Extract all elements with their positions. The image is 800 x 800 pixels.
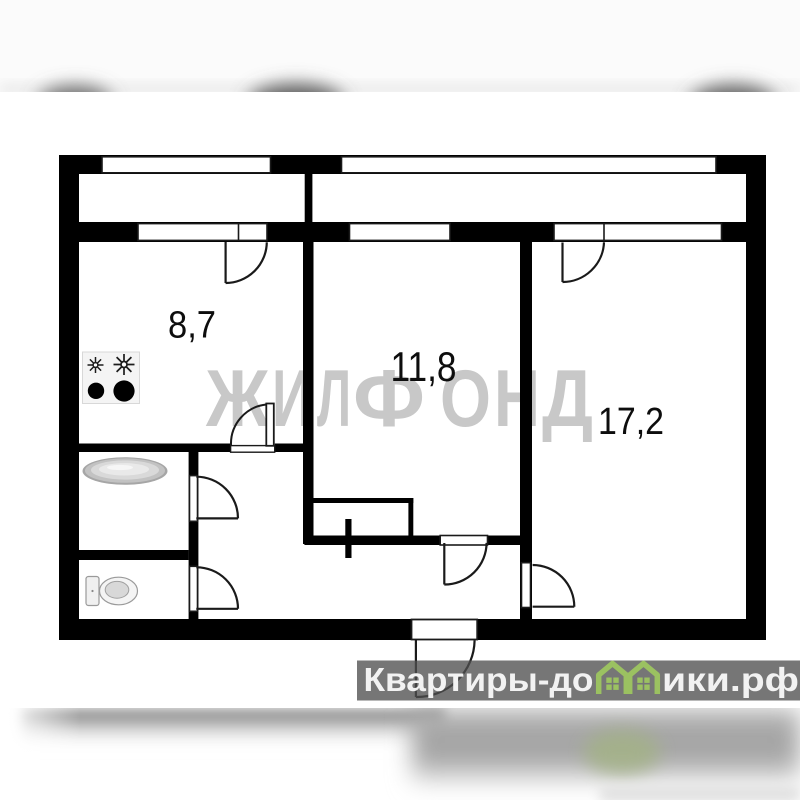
svg-text:17,2: 17,2 <box>598 401 664 443</box>
svg-text:Квартиры-до: Квартиры-до <box>364 662 594 699</box>
svg-text:ики.рф: ики.рф <box>662 662 799 699</box>
svg-text:Д: Д <box>542 354 593 444</box>
svg-text:11,8: 11,8 <box>391 343 457 390</box>
svg-text:Ж: Ж <box>205 354 270 444</box>
svg-text:8,7: 8,7 <box>168 305 216 347</box>
svg-text:Л: Л <box>317 354 351 444</box>
svg-text:Н: Н <box>494 354 540 444</box>
